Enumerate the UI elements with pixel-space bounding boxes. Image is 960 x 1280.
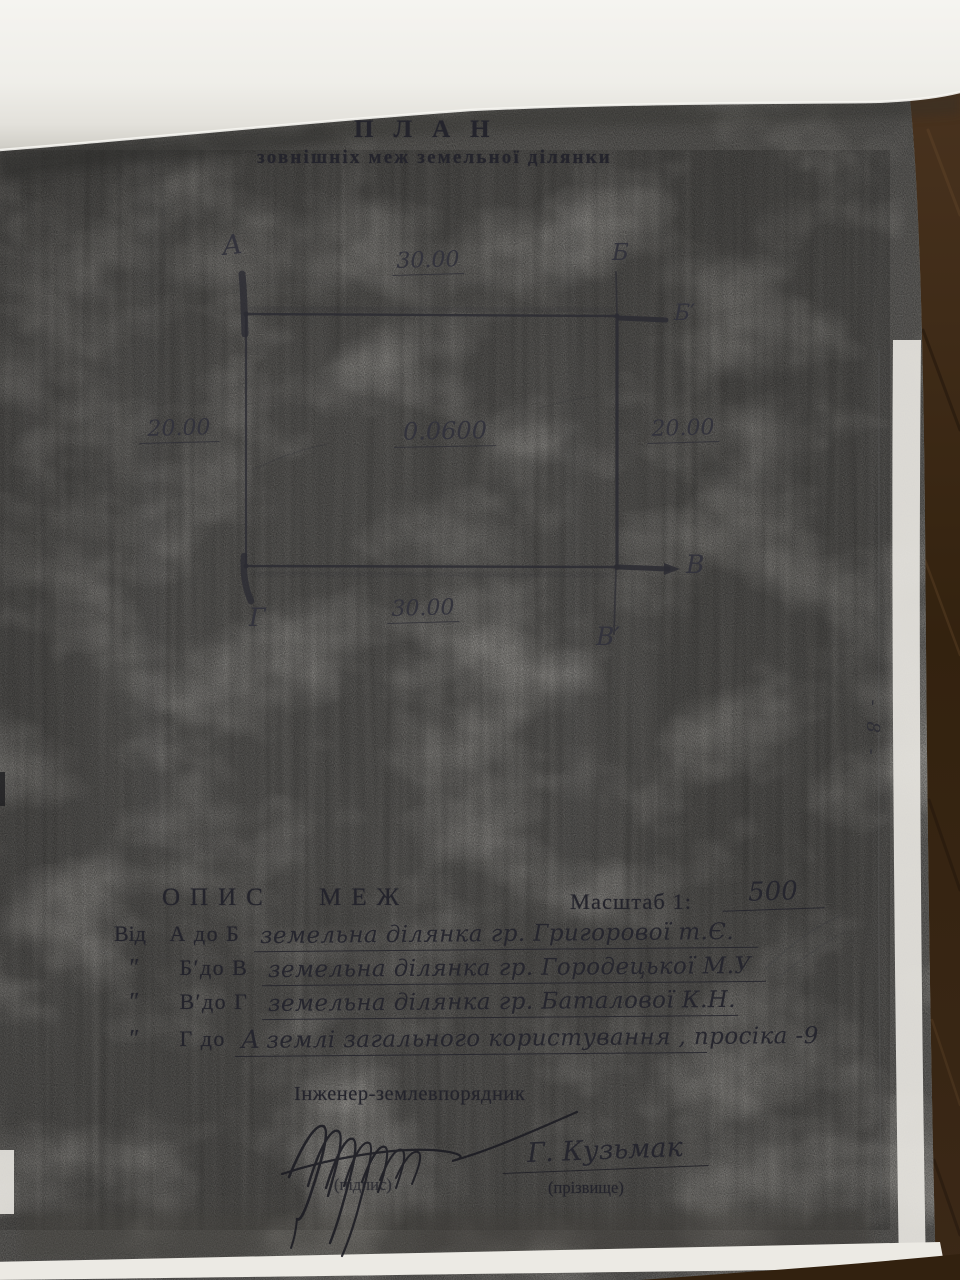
boundary-row-3: ″ В′до Г земельна ділянка гр. Баталової … (114, 989, 738, 1018)
page-number: - 8 - (861, 699, 884, 760)
corner-label-a: А (220, 229, 244, 262)
document-title: ПЛАН (354, 116, 510, 144)
corner-label-v-prime: В′ (596, 622, 620, 651)
row-value: земельна ділянка гр. Городецької М.У (262, 953, 766, 986)
row-range: В′до Г (180, 989, 249, 1015)
corner-label-b-prime: Б′ (674, 301, 695, 326)
row-range: Г до (180, 1026, 226, 1052)
engineer-name: Г. Кузьмак (501, 1131, 708, 1174)
row-value: земельна ділянка гр. Баталової К.Н. (262, 987, 738, 1020)
document-text-layer: ПЛАН зовнішніх меж земельної ділянки А Б… (0, 0, 960, 1280)
row-value: земельна ділянка гр. Григорової т.Є. (254, 919, 758, 952)
row-value: Аземлі загального користування , просіка… (235, 1021, 707, 1057)
row-range: Б′до В (180, 955, 249, 981)
scale-value: 500 (721, 875, 824, 912)
row-value-text: земельна ділянка гр. Баталової К.Н. (268, 987, 736, 1017)
corner-label-v: В (686, 550, 704, 579)
area-value: 0.0600 (394, 416, 497, 448)
row-value-text: землі загального користування , просіка … (267, 1023, 820, 1054)
photographed-survey-document: ПЛАН зовнішніх меж земельної ділянки А Б… (0, 0, 960, 1280)
dimension-bottom: 30.00 (387, 595, 460, 624)
dimension-left: 20.00 (139, 415, 220, 444)
legend-heading: ОПИС МЕЖ (162, 884, 409, 912)
row-prefix: Від (114, 921, 158, 947)
engineer-role: Інженер-землевпорядник (294, 1083, 525, 1106)
boundary-row-1: Від А до Б земельна ділянка гр. Григоров… (114, 921, 758, 950)
boundary-row-4: ″ Г до Аземлі загального користування , … (114, 1023, 707, 1055)
document-subtitle: зовнішніх меж земельної ділянки (257, 147, 612, 169)
dimension-right: 20.00 (647, 415, 720, 444)
boundary-row-2: ″ Б′до В земельна ділянка гр. Городецько… (114, 955, 766, 984)
row-value-initial: А (241, 1025, 261, 1054)
row-range: А до Б (170, 921, 241, 947)
name-caption: (прізвище) (548, 1178, 624, 1198)
dimension-top: 30.00 (392, 247, 465, 276)
corner-label-g: Г (249, 603, 266, 632)
row-prefix: ″ (128, 955, 148, 982)
corner-label-b: Б (612, 240, 629, 266)
row-value-text: земельна ділянка гр. Городецької М.У (268, 953, 752, 983)
scale-label: Масштаб 1: (570, 889, 692, 915)
row-prefix: ″ (128, 989, 148, 1016)
row-prefix: ″ (128, 1026, 148, 1053)
row-value-text: земельна ділянка гр. Григорової т.Є. (260, 919, 734, 949)
signature-caption: (підпис) (334, 1175, 392, 1195)
